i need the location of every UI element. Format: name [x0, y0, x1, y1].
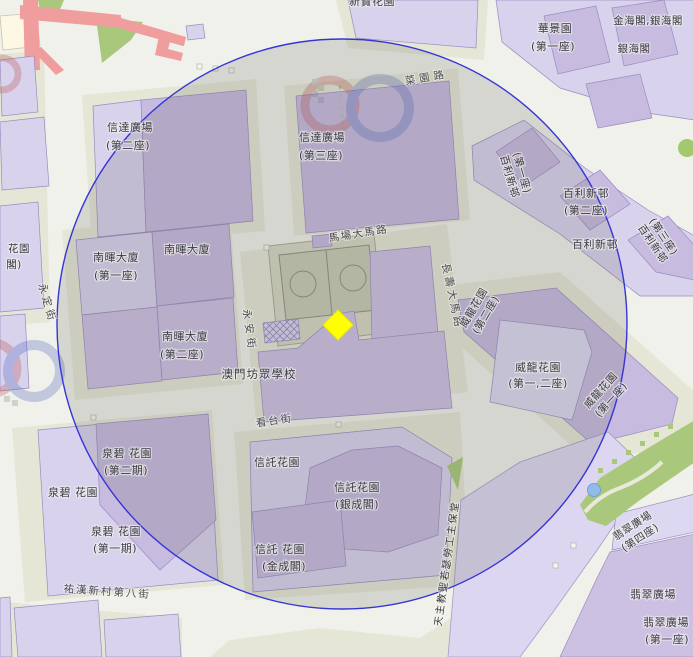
place-label-sun-tat-2: 信達廣場	[107, 120, 153, 134]
place-label-kam-hoi: 金海閣,銀海閣	[613, 14, 683, 27]
place-label-sun-tat-2-line2: (第二座)	[106, 138, 150, 152]
place-label-son-tok-ngan: 信託花園	[334, 480, 380, 494]
place-label-chun-pek-2-line2: (第二期)	[104, 463, 148, 477]
building-sw-3	[0, 597, 12, 657]
place-label-west-edge-partial: 花園	[8, 242, 30, 255]
place-label-school: 澳門坊眾學校	[222, 367, 297, 381]
place-label-wa-keng-line2: (第一座)	[531, 39, 575, 53]
building-sw-2	[104, 614, 181, 657]
building-small-north	[186, 24, 205, 40]
building-sw-1	[14, 600, 102, 657]
place-label-sun-tat-3-line2: (第三座)	[299, 148, 343, 162]
place-label-son-tok: 信託花園	[254, 455, 300, 469]
place-label-san-pou: 新寶花園	[349, 0, 395, 8]
place-label-nam-fai-2: 南暉大廈	[162, 329, 208, 343]
place-label-son-tok-kam: 信託 花園	[255, 542, 305, 556]
place-label-chun-pek-1-line2: (第一期)	[93, 541, 137, 555]
place-label-nam-fai-1: 南暉大廈	[93, 250, 139, 264]
place-label-nam-fai: 南暉大廈	[164, 242, 210, 256]
place-label-nam-fai-2-line2: (第二座)	[160, 347, 204, 361]
building-ngan-hoi	[586, 74, 652, 128]
pond	[588, 484, 601, 497]
building-west-3	[0, 202, 44, 312]
place-label-fei-choi-1-line2: (第一座)	[645, 632, 689, 646]
place-label-ngan-hoi: 銀海閣	[618, 42, 651, 55]
place-label-wai-long-12: 威龍花園	[515, 360, 561, 374]
place-label-fei-choi-1: 翡翠廣場	[643, 615, 689, 629]
place-label-chun-pek-1: 泉碧 花園	[91, 524, 141, 538]
place-label-wai-long-12-line2: (第一,二座)	[508, 376, 568, 390]
building-west-2	[0, 117, 49, 190]
place-label-chun-pek: 泉碧 花園	[48, 485, 98, 499]
place-label-west-edge-partial-line2: 閣)	[6, 259, 22, 271]
place-label-nam-fai-1-line2: (第一座)	[94, 268, 138, 282]
place-label-pak-lei-2: 百利新邨	[563, 186, 609, 200]
place-label-pak-lei-2-line2: (第二座)	[564, 203, 608, 217]
map-viewport[interactable]: 菜園路 馬場大馬路 永安街 永定街 長壽大馬路 看台街 祐漢新村第八街 新寶花園…	[0, 0, 693, 657]
map-canvas[interactable]: 菜園路 馬場大馬路 永安街 永定街 長壽大馬路 看台街 祐漢新村第八街 新寶花園…	[0, 0, 693, 657]
place-label-pak-lei: 百利新邨	[572, 237, 618, 251]
place-label-sun-tat-3: 信達廣場	[299, 130, 345, 144]
place-label-chun-pek-2: 泉碧 花園	[102, 446, 152, 460]
place-label-son-tok-ngan-line2: (銀成閣)	[335, 497, 379, 511]
place-label-wa-keng: 華景園	[538, 22, 573, 35]
place-label-fei-choi-cut: 翡翠廣場	[630, 587, 676, 601]
place-label-son-tok-kam-line2: (金成閣)	[262, 559, 306, 573]
